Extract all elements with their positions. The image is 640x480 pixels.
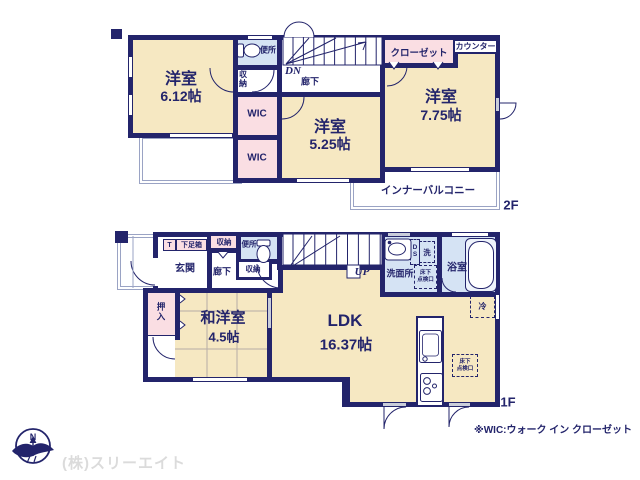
compass-north-label: N [30,432,37,442]
bathtub-icon [466,239,497,292]
stairs-down-label: DN [285,65,301,77]
toilet-1f-icon [257,240,270,263]
floorplan-annotations [0,0,640,480]
room-label: 洋室 [425,83,457,107]
washbasin-icon [385,239,411,260]
washroom-label: 洗面所 [386,267,413,280]
stairs-up-label: UP [355,266,370,278]
toilet-label: 便所 [242,239,257,250]
room-size: 6.12帖 [160,86,201,106]
stove-icon [421,374,443,402]
genkan-label: 玄関 [175,260,195,275]
room-size: 7.75帖 [420,105,461,125]
room-size: 4.5帖 [208,327,239,346]
storage-label: 収納 [238,71,248,89]
room-size: 16.37帖 [320,334,373,355]
wic-label: WIC [247,153,266,164]
oshiire-label: 押入 [156,302,166,321]
closet-label: クローゼット [390,45,447,59]
floor-plan-canvas: カウンター T 下足箱 冷 床下点検口 床下点検口 洗 DS [0,0,640,480]
wic-label: WIC [247,109,266,120]
floor-tag-1f: 1F [500,395,515,410]
hall-label: 廊下 [301,75,319,88]
room-size: 5.25帖 [309,134,350,154]
room-label: 和洋室 [200,307,245,328]
stairwell-door-arc [284,22,314,37]
toilet-2f-icon [238,44,261,57]
bathroom-label: 浴室 [447,259,467,274]
kitchen-sink-icon [420,331,442,363]
floor-tag-2f: 2F [503,198,518,213]
hall-label: 廊下 [213,265,231,278]
storage-label: 収納 [246,264,261,275]
stairs-2f [283,37,382,65]
company-watermark: (株)スリーエイト [62,452,186,473]
wic-note: ※WIC:ウォーク イン クローゼット [474,421,632,436]
room-label: LDK [328,311,363,331]
storage-label: 収納 [217,237,232,248]
balcony-label: インナーバルコニー [381,183,475,198]
toilet-label: 便所 [260,45,276,56]
